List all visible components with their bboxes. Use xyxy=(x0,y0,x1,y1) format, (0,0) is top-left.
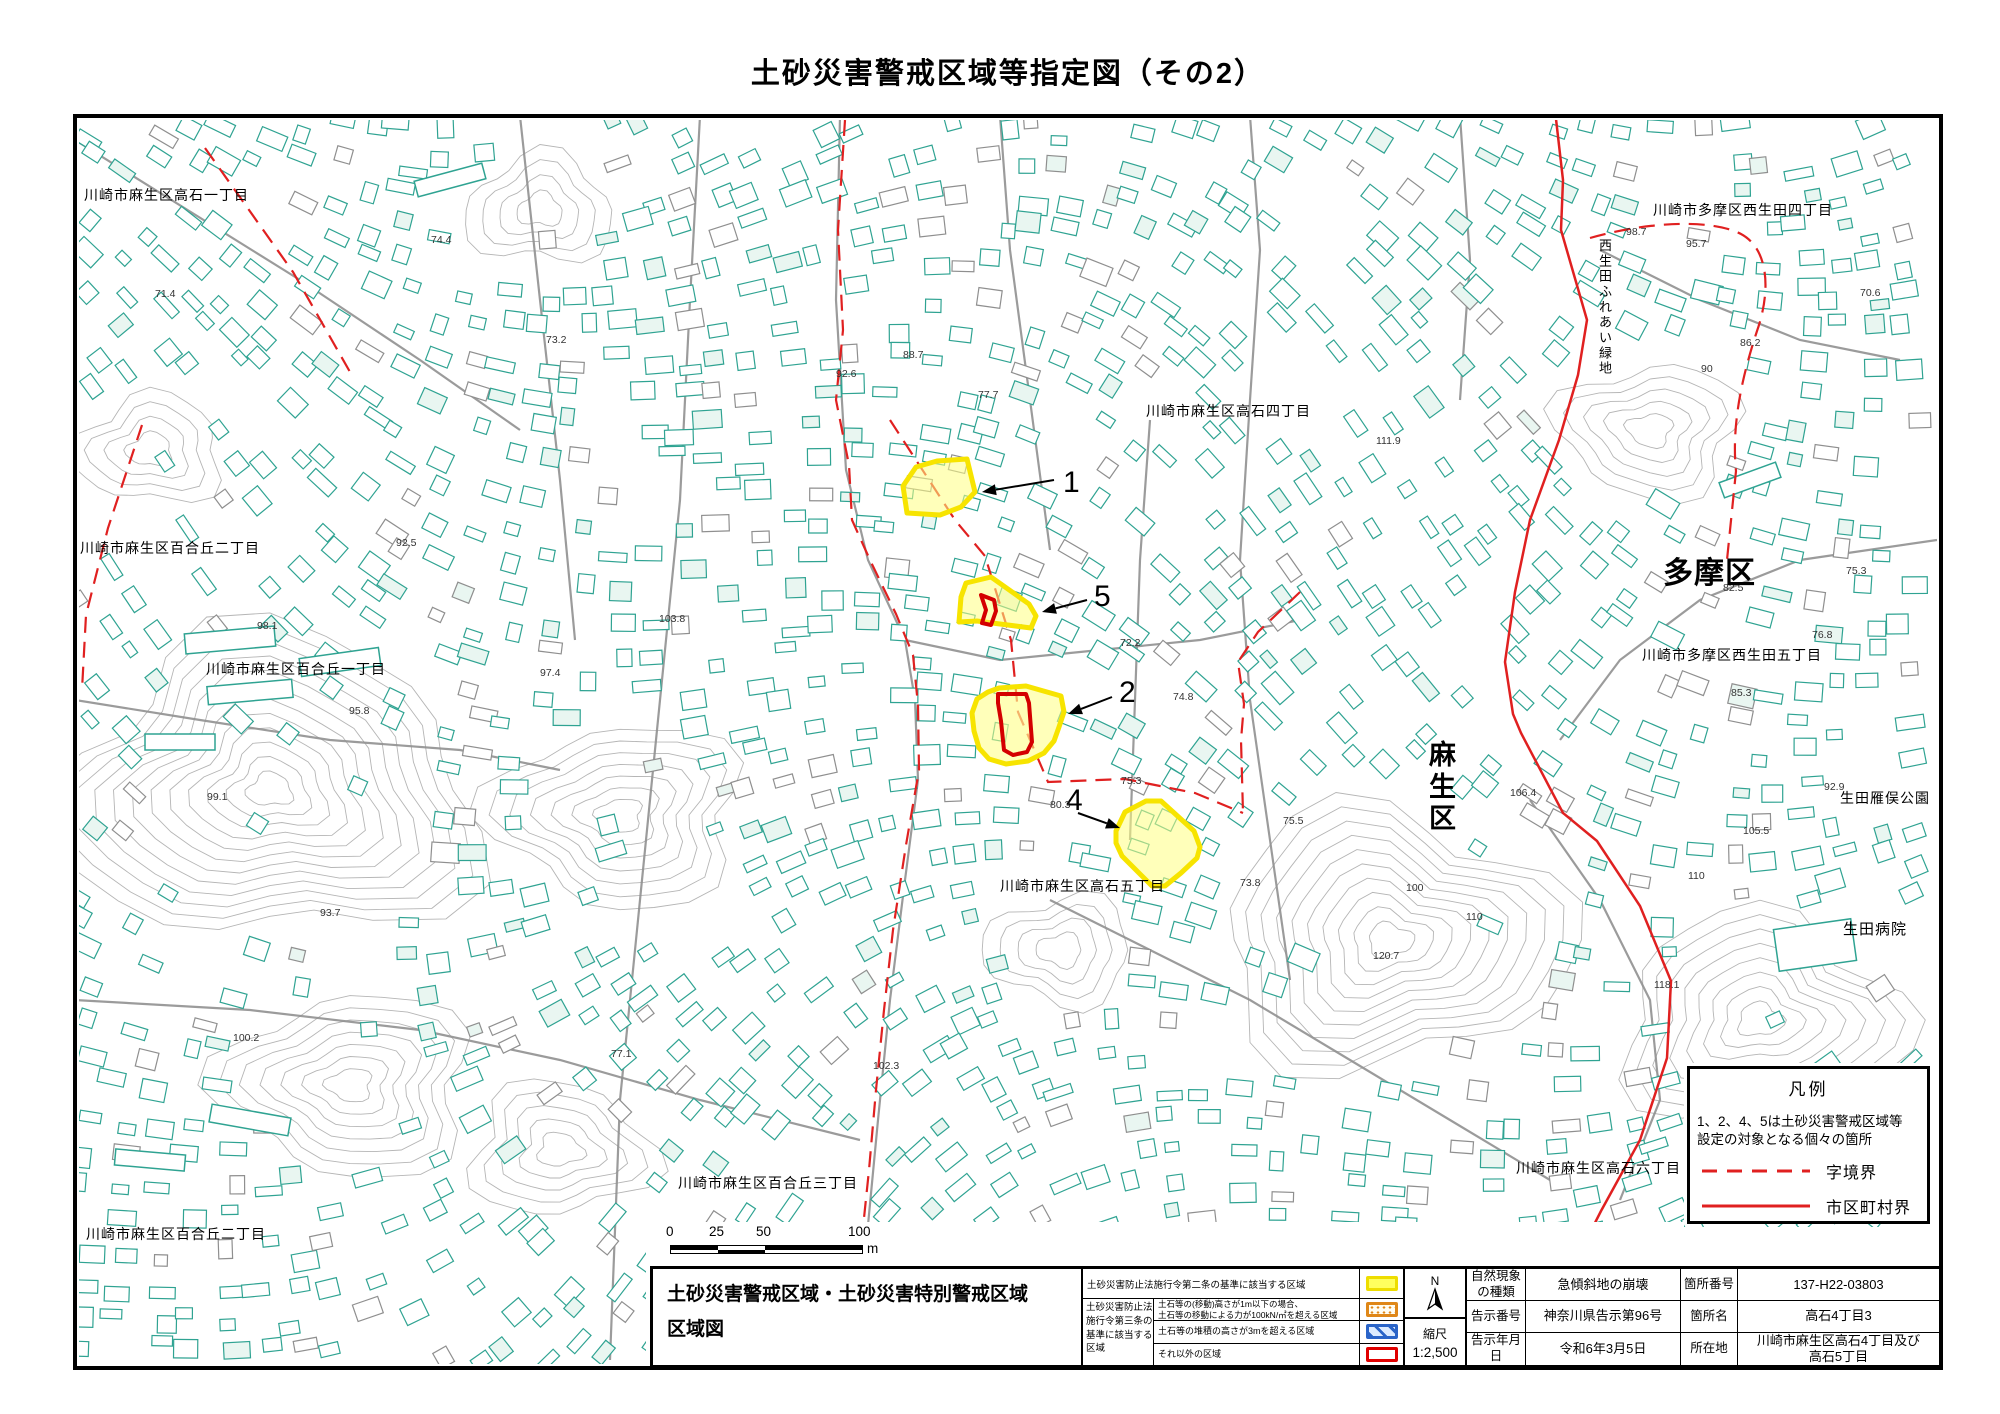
building xyxy=(474,143,495,162)
building xyxy=(1265,1101,1283,1117)
building xyxy=(703,350,723,367)
info-value-location: 川崎市麻生区高石4丁目及び 高石5丁目 xyxy=(1738,1333,1939,1366)
info-label-notice-number: 告示番号 xyxy=(1467,1301,1526,1332)
building xyxy=(218,1239,232,1258)
building xyxy=(1729,845,1743,863)
building xyxy=(1749,157,1767,175)
yellow-zone-swatch xyxy=(1366,1276,1398,1291)
building xyxy=(1549,1174,1571,1191)
building xyxy=(822,591,843,610)
building xyxy=(592,286,613,306)
blue-hatched-swatch xyxy=(1366,1324,1398,1339)
spot-elevation: 77.1 xyxy=(611,1048,632,1060)
building xyxy=(154,1255,167,1267)
building xyxy=(766,689,790,711)
building xyxy=(702,515,730,532)
building xyxy=(985,840,1002,860)
building xyxy=(454,808,476,826)
building xyxy=(1801,382,1822,399)
area-label: い xyxy=(1599,330,1612,345)
building xyxy=(924,258,950,275)
building xyxy=(955,812,980,825)
building xyxy=(1383,1185,1405,1196)
building xyxy=(912,809,941,829)
scale-bar: 0 25 50 100 m xyxy=(670,1224,895,1260)
article3-row-3: それ以外の区域 xyxy=(1154,1344,1403,1365)
building xyxy=(734,393,756,408)
building xyxy=(1870,639,1886,655)
building xyxy=(507,443,527,463)
spot-elevation: 88.7 xyxy=(903,349,924,361)
legend-label: 字境界 xyxy=(1826,1159,1877,1183)
north-arrow-icon xyxy=(1426,1287,1444,1311)
legend-row-aza-boundary: 字境界 xyxy=(1700,1159,1917,1183)
building xyxy=(631,381,656,400)
building xyxy=(922,354,942,365)
building xyxy=(1716,287,1735,304)
building xyxy=(139,1078,167,1102)
area-label: 生田病院 xyxy=(1843,920,1907,938)
building xyxy=(560,407,575,425)
building xyxy=(1332,1211,1359,1222)
building xyxy=(427,952,451,974)
building xyxy=(361,1022,378,1037)
building xyxy=(692,409,722,429)
article2-label: 土砂災害防止法施行令第二条の基準に該当する区域 xyxy=(1083,1269,1359,1298)
building xyxy=(152,1336,173,1347)
legend-box: 凡例 1、2、4、5は土砂災害警戒区域等 設定の対象となる個々の箇所 字境界 市… xyxy=(1687,1066,1930,1224)
spot-elevation: 92.5 xyxy=(396,537,417,549)
spot-elevation: 110 xyxy=(1688,870,1705,882)
building xyxy=(1687,842,1713,856)
building xyxy=(805,719,825,735)
spot-elevation: 74.4 xyxy=(431,234,452,246)
scale-value: 1:2,500 xyxy=(1412,1345,1457,1360)
building xyxy=(1730,311,1748,329)
building xyxy=(856,728,877,741)
building xyxy=(560,361,584,373)
building xyxy=(1733,788,1750,799)
area-label: れ xyxy=(1599,299,1612,314)
building xyxy=(1342,1108,1371,1132)
building xyxy=(1138,1139,1157,1159)
building xyxy=(553,710,580,726)
building xyxy=(157,1316,176,1334)
info-value-notice-number: 神奈川県告示第96号 xyxy=(1526,1301,1681,1332)
spot-elevation: 103.8 xyxy=(659,613,685,625)
building xyxy=(220,1142,247,1156)
building xyxy=(1901,662,1918,676)
spot-elevation: 98.1 xyxy=(257,620,278,632)
building xyxy=(1098,1046,1116,1059)
building xyxy=(1734,888,1749,899)
area-label: 川崎市麻生区高石五丁目 xyxy=(1000,878,1165,894)
swatch-cell xyxy=(1359,1269,1403,1298)
orange-dotted-swatch xyxy=(1366,1302,1398,1317)
building xyxy=(1573,947,1590,961)
building xyxy=(809,519,828,533)
building xyxy=(1896,359,1923,380)
building xyxy=(679,364,701,375)
spot-elevation: 80.3 xyxy=(1050,799,1071,811)
building xyxy=(1662,947,1676,957)
building xyxy=(644,257,666,280)
building xyxy=(1611,125,1631,140)
spot-elevation: 75.3 xyxy=(1846,565,1867,577)
swatch-cell xyxy=(1359,1344,1403,1365)
building xyxy=(664,429,693,445)
building xyxy=(851,226,873,247)
legend-row-municipal-boundary: 市区町村界 xyxy=(1700,1194,1917,1218)
building xyxy=(104,1286,129,1302)
building xyxy=(563,287,586,305)
building xyxy=(558,377,577,393)
area-label: 川崎市多摩区西生田四丁目 xyxy=(1653,202,1833,218)
building xyxy=(1805,188,1822,202)
zone-number: 2 xyxy=(1119,676,1136,709)
building xyxy=(1051,136,1067,146)
building xyxy=(735,463,764,475)
building xyxy=(489,879,514,896)
building xyxy=(1865,314,1885,334)
building xyxy=(1189,1090,1208,1101)
building xyxy=(980,249,1000,266)
article3-group-label: 土砂災害防止法 施行令第三条の 基準に該当する 区域 xyxy=(1083,1299,1154,1365)
building xyxy=(1767,222,1782,235)
building xyxy=(1895,261,1913,279)
building xyxy=(1113,1085,1141,1104)
map-sheet-title: 土砂災害警戒区域・土砂災害特別警戒区域 区域図 xyxy=(653,1269,1083,1365)
area-label: 川崎市麻生区百合丘三丁目 xyxy=(678,1175,858,1191)
area-label: 区 xyxy=(1429,804,1456,834)
building xyxy=(1604,982,1630,992)
building xyxy=(771,286,787,305)
building xyxy=(872,248,894,264)
spot-elevation: 97.4 xyxy=(540,667,561,679)
building xyxy=(914,744,941,765)
building xyxy=(1835,411,1854,428)
building xyxy=(67,1307,94,1328)
building xyxy=(1343,1153,1366,1172)
building xyxy=(917,705,935,721)
building xyxy=(1909,413,1931,428)
building xyxy=(1001,223,1015,239)
building xyxy=(539,640,563,654)
building xyxy=(1549,970,1575,991)
building xyxy=(540,447,561,467)
building xyxy=(1804,590,1826,612)
hazard-map-sheet: 土砂災害警戒区域等指定図（その2） 152471.474.473.288.792… xyxy=(0,0,2000,1414)
building xyxy=(505,816,521,830)
scale-tick-label: 25 xyxy=(709,1224,724,1239)
building xyxy=(539,364,560,380)
building xyxy=(598,552,627,563)
article3-row-2: 土石等の堆積の高さが3mを超える区域 xyxy=(1154,1321,1403,1343)
spot-elevation: 100 xyxy=(1406,882,1424,894)
building xyxy=(531,413,556,433)
building xyxy=(879,815,896,831)
building xyxy=(144,1182,170,1194)
building xyxy=(1024,246,1044,265)
scale-cell: 縮尺 1:2,500 xyxy=(1405,1319,1465,1365)
area-label: 生 xyxy=(1599,253,1612,268)
building xyxy=(504,310,526,329)
building xyxy=(1247,1117,1262,1129)
building xyxy=(844,275,869,294)
building xyxy=(1378,1081,1401,1100)
building xyxy=(786,578,806,598)
building xyxy=(1833,538,1850,559)
scale-tick-label: 0 xyxy=(666,1224,674,1239)
building xyxy=(635,317,664,334)
building xyxy=(115,1248,137,1263)
spot-elevation: 100.2 xyxy=(233,1032,259,1044)
building xyxy=(1854,250,1879,270)
area-label: 麻 xyxy=(1429,740,1457,770)
building xyxy=(609,581,631,601)
building xyxy=(604,257,628,280)
building xyxy=(1651,917,1673,937)
building xyxy=(430,151,448,167)
building xyxy=(775,641,796,652)
building xyxy=(854,592,879,607)
building xyxy=(1838,519,1854,535)
building xyxy=(708,323,729,339)
building xyxy=(889,324,909,342)
zone-number: 1 xyxy=(1063,466,1080,499)
building xyxy=(851,748,872,767)
article2-row: 土砂災害防止法施行令第二条の基準に該当する区域 xyxy=(1083,1269,1403,1299)
building xyxy=(569,447,590,463)
building xyxy=(498,756,520,770)
building xyxy=(702,382,720,398)
building xyxy=(1788,807,1815,820)
building xyxy=(1522,1044,1542,1057)
legend-label: 市区町村界 xyxy=(1826,1194,1911,1218)
building xyxy=(1800,351,1827,372)
building xyxy=(984,775,1010,793)
building xyxy=(241,1283,269,1298)
building xyxy=(175,1308,192,1319)
building xyxy=(944,789,961,802)
scale-tick-label: 100 xyxy=(848,1224,871,1239)
building xyxy=(716,477,740,490)
building xyxy=(399,918,419,928)
building xyxy=(1832,258,1852,273)
building xyxy=(693,453,721,464)
building xyxy=(645,356,674,375)
building xyxy=(1226,1079,1253,1097)
building xyxy=(844,428,862,442)
building xyxy=(752,531,770,543)
building xyxy=(598,487,618,505)
building xyxy=(1269,1151,1284,1171)
building xyxy=(1762,785,1783,802)
spot-elevation: 98.7 xyxy=(1626,226,1647,238)
building xyxy=(1799,249,1824,265)
building xyxy=(784,510,805,522)
building xyxy=(810,488,833,501)
building xyxy=(417,985,438,1005)
building xyxy=(916,672,942,691)
info-value-site-number: 137-H22-03803 xyxy=(1738,1269,1939,1301)
building xyxy=(808,676,825,688)
building xyxy=(1647,120,1673,134)
building xyxy=(1802,776,1824,786)
legend-title: 凡例 xyxy=(1690,1075,1927,1100)
building xyxy=(582,313,597,332)
building xyxy=(542,620,560,638)
spot-elevation: 70.6 xyxy=(1860,287,1881,299)
building xyxy=(1159,982,1188,1000)
building xyxy=(841,344,857,363)
spot-elevation: 118.1 xyxy=(1654,979,1680,991)
building xyxy=(745,479,771,499)
building xyxy=(1751,754,1767,767)
building xyxy=(469,315,487,330)
building xyxy=(1749,852,1776,872)
building xyxy=(437,118,454,138)
article3-row3-label: それ以外の区域 xyxy=(1154,1344,1359,1365)
article3-row1-label: 土石等の(移動)高さが1m以下の場合、 土石等の移動による力が100kN/㎡を超… xyxy=(1154,1299,1359,1320)
building xyxy=(1001,119,1019,140)
area-label: 川崎市多摩区西生田五丁目 xyxy=(1642,647,1822,663)
building xyxy=(539,548,556,562)
spot-elevation: 73.8 xyxy=(1240,877,1261,889)
building xyxy=(918,216,946,237)
building xyxy=(458,845,486,861)
swatch-cell xyxy=(1359,1321,1403,1342)
building xyxy=(1835,644,1860,661)
building xyxy=(1486,1121,1503,1140)
building xyxy=(1890,280,1918,300)
building xyxy=(456,291,473,305)
building xyxy=(1860,525,1881,539)
building xyxy=(184,1119,204,1132)
compass-scale-column: N 縮尺 1:2,500 xyxy=(1405,1269,1467,1365)
building xyxy=(1366,1140,1390,1157)
zone-number: 5 xyxy=(1094,580,1111,613)
spot-elevation: 86.2 xyxy=(1740,337,1761,349)
title-block-table: 土砂災害警戒区域・土砂災害特別警戒区域 区域図 土砂災害防止法施行令第二条の基準… xyxy=(650,1266,1942,1368)
scale-tick-label: 50 xyxy=(756,1224,771,1239)
spot-elevation: 92.6 xyxy=(836,368,857,380)
spot-elevation: 99.1 xyxy=(207,791,228,803)
building xyxy=(107,1210,136,1227)
building xyxy=(174,1339,198,1358)
building xyxy=(112,1184,129,1195)
building xyxy=(1890,314,1909,335)
building xyxy=(617,649,632,667)
building xyxy=(1450,1140,1473,1154)
spot-elevation: 75.5 xyxy=(1283,815,1304,827)
building xyxy=(458,877,484,895)
building xyxy=(808,615,833,632)
building xyxy=(543,297,560,311)
building xyxy=(118,1123,136,1136)
area-label: 多摩区 xyxy=(1663,556,1756,590)
area-label: 地 xyxy=(1599,361,1612,376)
building xyxy=(913,657,931,670)
building xyxy=(1830,673,1844,687)
building xyxy=(223,1342,250,1360)
legend-note: 1、2、4、5は土砂災害警戒区域等 設定の対象となる個々の箇所 xyxy=(1697,1113,1920,1148)
building xyxy=(1504,1119,1520,1139)
building xyxy=(538,230,556,249)
building xyxy=(943,712,966,723)
area-label: 川崎市麻生区百合丘二丁目 xyxy=(80,540,260,556)
building xyxy=(289,947,306,962)
area-label: 川崎市麻生区百合丘二丁目 xyxy=(86,1226,266,1242)
area-label: 西 xyxy=(1599,238,1612,253)
scale-bar-graphic xyxy=(670,1245,863,1254)
building xyxy=(100,1309,122,1319)
building xyxy=(66,1146,91,1168)
building xyxy=(947,744,976,757)
area-label: 緑 xyxy=(1599,345,1612,360)
building xyxy=(222,1205,238,1214)
building xyxy=(1856,673,1878,687)
building xyxy=(1404,1153,1432,1174)
spot-elevation: 95.7 xyxy=(1686,238,1707,250)
building xyxy=(757,550,772,565)
building xyxy=(1868,621,1886,636)
building xyxy=(1198,1110,1220,1124)
building xyxy=(146,1119,175,1140)
building xyxy=(976,288,1002,309)
building xyxy=(930,848,948,865)
building xyxy=(1348,1174,1365,1187)
building xyxy=(526,314,547,333)
building xyxy=(993,807,1019,823)
building xyxy=(220,1319,236,1331)
building xyxy=(1480,1150,1504,1168)
building xyxy=(639,650,662,665)
article3-row-1: 土石等の(移動)高さが1m以下の場合、 土石等の移動による力が100kN/㎡を超… xyxy=(1154,1299,1403,1321)
info-label-phenomenon: 自然現象 の種類 xyxy=(1467,1269,1526,1301)
building xyxy=(1129,947,1151,965)
building xyxy=(1864,398,1882,411)
building xyxy=(951,674,982,696)
building xyxy=(635,546,662,561)
building xyxy=(291,1250,319,1272)
building xyxy=(873,387,897,397)
building xyxy=(1886,614,1908,634)
building xyxy=(1893,223,1913,242)
building xyxy=(782,626,810,637)
spot-elevation: 77.7 xyxy=(978,389,999,401)
building xyxy=(736,351,755,370)
spot-elevation: 71.4 xyxy=(155,288,176,300)
building xyxy=(498,282,523,297)
north-label: N xyxy=(1431,1275,1440,1287)
building xyxy=(1838,218,1853,230)
building xyxy=(290,1276,310,1293)
swatch-cell xyxy=(1359,1299,1403,1320)
building xyxy=(749,431,772,444)
building xyxy=(958,392,978,410)
building xyxy=(1164,1202,1179,1217)
building xyxy=(1870,299,1889,311)
building xyxy=(604,346,630,359)
spot-elevation: 93.7 xyxy=(320,907,341,919)
area-label: 川崎市麻生区高石一丁目 xyxy=(84,187,249,203)
spot-elevation: 110 xyxy=(1466,911,1483,923)
info-label-site-name: 箇所名 xyxy=(1681,1301,1738,1332)
building xyxy=(255,1186,282,1197)
building xyxy=(1853,456,1878,477)
spot-elevation: 72.2 xyxy=(1120,637,1141,649)
